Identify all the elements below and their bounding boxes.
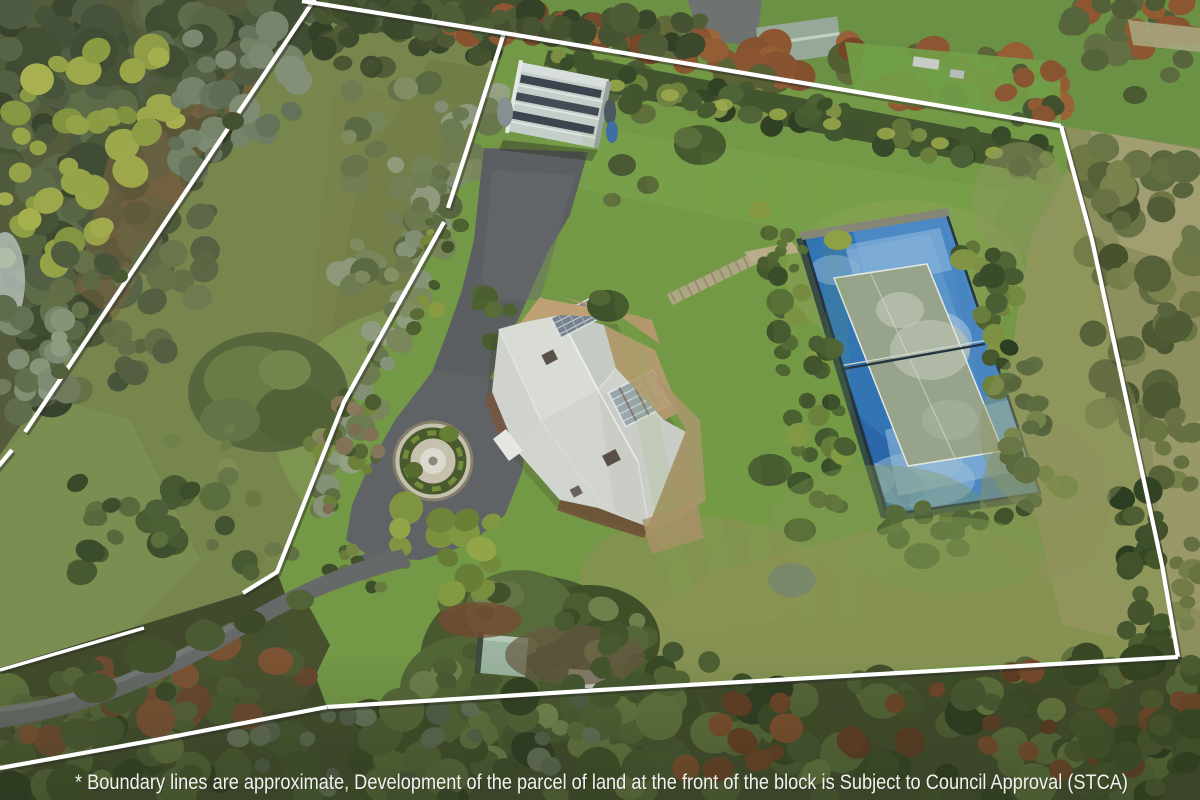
svg-text:* Boundary lines are approxima: * Boundary lines are approximate, Develo… — [75, 770, 1128, 794]
